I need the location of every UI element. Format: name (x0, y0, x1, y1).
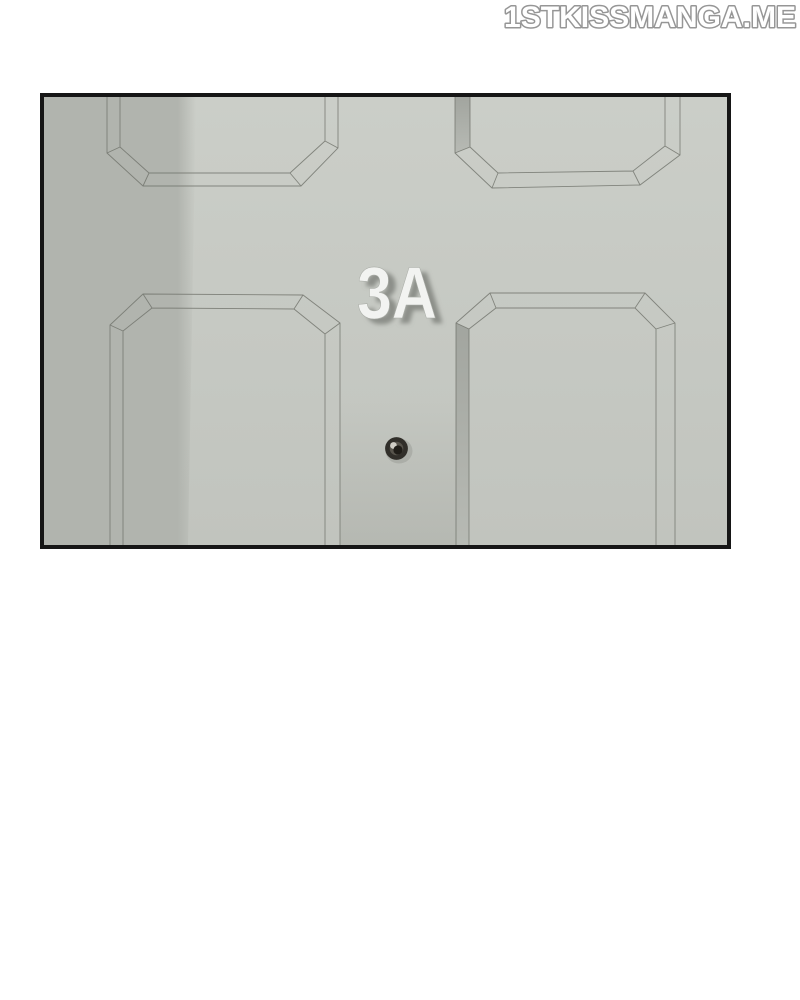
comic-panel: 3A (40, 93, 731, 549)
door-panel-bevel-bottom-right (456, 323, 469, 545)
door-number-label: 3A (357, 253, 437, 334)
watermark-graphic: 1STKISSMANGA.ME (497, 2, 797, 34)
door-shadow-left (44, 97, 196, 545)
door-illustration: 3A (44, 97, 727, 545)
peephole-hole (393, 445, 402, 454)
door-gap-shading (340, 397, 456, 545)
watermark-text: 1STKISSMANGA.ME (504, 2, 796, 34)
site-watermark: 1STKISSMANGA.ME (497, 2, 797, 34)
door-panel-bevel-top-right (455, 97, 470, 153)
page: { "watermark": { "text": "1STKISSMANGA.M… (0, 0, 800, 1000)
